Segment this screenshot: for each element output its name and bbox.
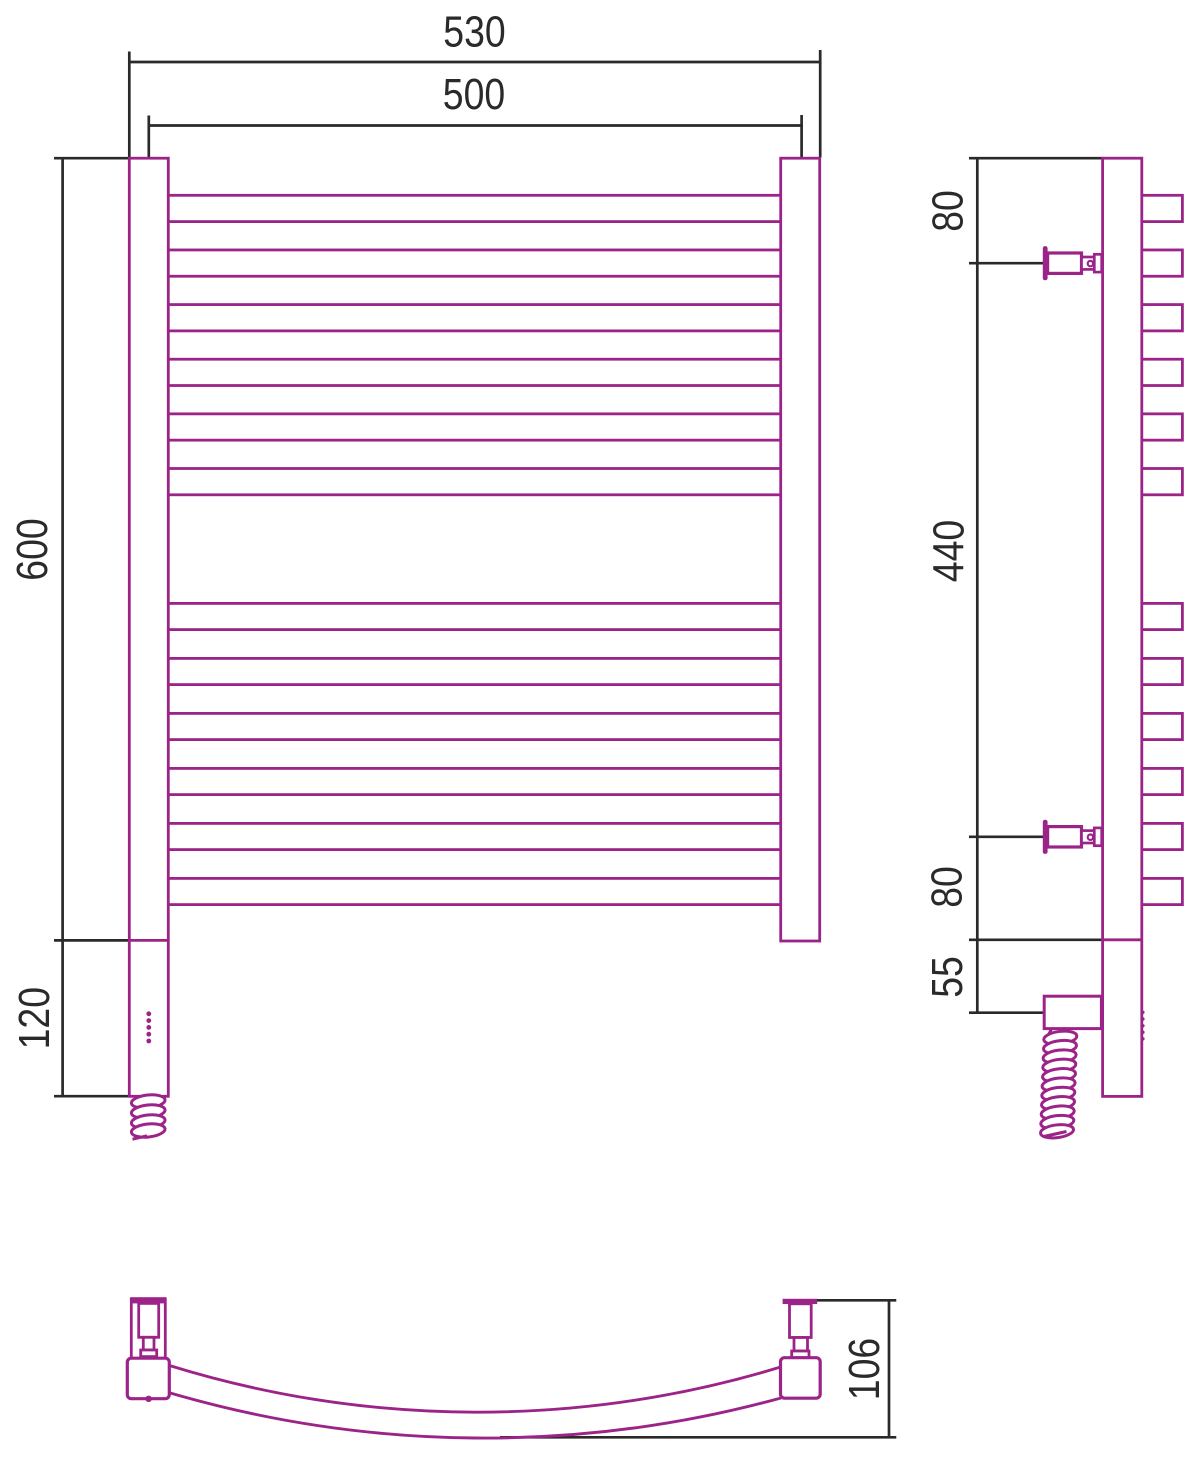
svg-text:600: 600 — [7, 518, 57, 580]
svg-text:120: 120 — [9, 987, 59, 1049]
svg-text:500: 500 — [443, 69, 505, 119]
svg-text:55: 55 — [922, 956, 972, 998]
svg-text:80: 80 — [922, 866, 972, 908]
svg-text:106: 106 — [839, 1338, 889, 1400]
svg-text:530: 530 — [443, 7, 505, 57]
svg-text:440: 440 — [923, 520, 973, 582]
svg-text:80: 80 — [922, 190, 972, 232]
